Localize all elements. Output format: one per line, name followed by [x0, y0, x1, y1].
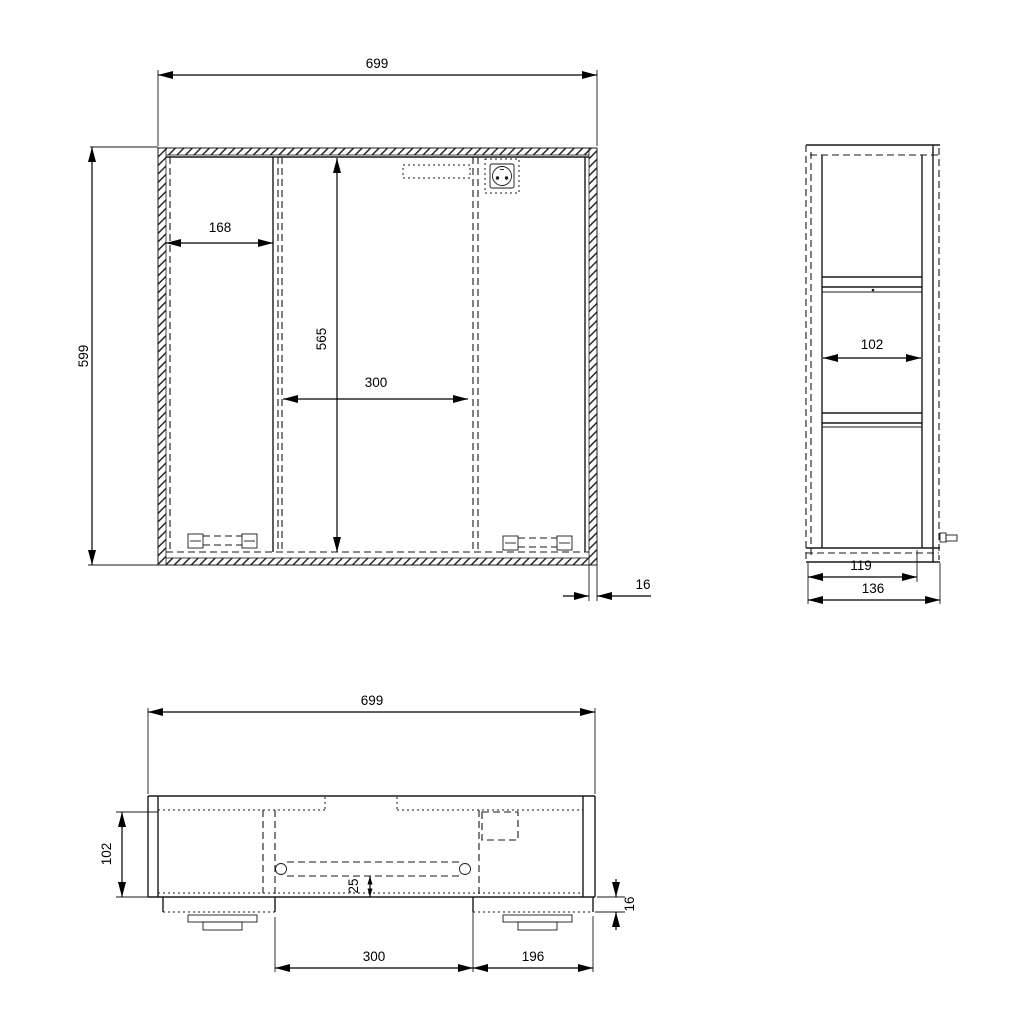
- bottom-handle-left-icon: [188, 915, 257, 930]
- dim-label-front-overall-width: 699: [366, 56, 389, 71]
- side-handle-icon: [940, 533, 957, 542]
- bottom-right-door: [473, 897, 593, 930]
- side-view: 102 119 136: [806, 145, 957, 604]
- dim-side-overall-depth: 136: [808, 563, 940, 604]
- socket-depth-outline: [482, 812, 518, 840]
- hidden-fixture-outline: [403, 165, 470, 178]
- hinge-hole-left-icon: [276, 864, 287, 875]
- dim-label-bottom-body-depth: 102: [99, 843, 114, 866]
- dim-right-door-width: 196: [473, 916, 593, 972]
- bottom-hidden-partitions: [263, 810, 518, 897]
- side-outline: [806, 145, 940, 563]
- dim-label-front-overall-height: 599: [76, 345, 91, 368]
- dim-label-side-inner-depth: 102: [861, 337, 884, 352]
- bottom-hidden-rail: [276, 862, 471, 876]
- right-door: [473, 157, 585, 552]
- dim-opening-width: 300: [283, 375, 468, 399]
- dim-front-overall-height: 599: [76, 147, 166, 565]
- dim-bottom-opening-width: 300: [275, 897, 473, 972]
- technical-drawing-canvas: 699 599 168 565 300 16: [0, 0, 1024, 1024]
- dim-label-bottom-opening-width: 300: [363, 949, 386, 964]
- technical-drawing-page: 699 599 168 565 300 16: [0, 0, 1024, 1024]
- bottom-outline: [148, 796, 595, 897]
- dim-rail-inset: 25: [346, 876, 370, 897]
- dim-label-opening-width: 300: [365, 375, 388, 390]
- dim-panel-thickness: 16: [563, 565, 651, 601]
- dim-label-rail-inset: 25: [346, 878, 361, 893]
- dim-door-thickness: 16: [595, 879, 637, 930]
- dim-left-door-width: 168: [166, 220, 273, 243]
- dim-bottom-overall-width: 699: [148, 693, 595, 794]
- dim-label-panel-thickness: 16: [635, 577, 650, 592]
- front-carcass-outline: [158, 148, 597, 565]
- dim-bottom-body-depth: 102: [99, 812, 158, 897]
- dim-label-side-overall-depth: 136: [862, 581, 885, 596]
- bottom-handle-right-icon: [503, 915, 572, 930]
- door-handle-left-icon: [188, 534, 257, 548]
- dim-opening-height: 565: [314, 158, 337, 552]
- left-door: [170, 157, 282, 552]
- bottom-left-door: [163, 897, 275, 930]
- hinge-hole-right-icon: [460, 864, 471, 875]
- dim-front-overall-width: 699: [158, 56, 597, 146]
- door-handle-right-icon: [503, 536, 572, 550]
- dim-label-right-door-width: 196: [522, 949, 545, 964]
- dim-label-left-door-width: 168: [209, 220, 232, 235]
- dim-label-side-carcass-depth: 119: [850, 558, 872, 573]
- dim-label-door-thickness: 16: [622, 896, 637, 911]
- dim-label-opening-height: 565: [314, 328, 329, 351]
- dim-side-inner-depth: 102: [823, 337, 921, 358]
- side-shelves: [822, 277, 922, 427]
- front-view: 699 599 168 565 300 16: [76, 56, 651, 601]
- power-socket-icon: [485, 159, 519, 193]
- dim-label-bottom-overall-width: 699: [361, 693, 384, 708]
- bottom-view: 699 102 25 16 300 196: [99, 693, 637, 972]
